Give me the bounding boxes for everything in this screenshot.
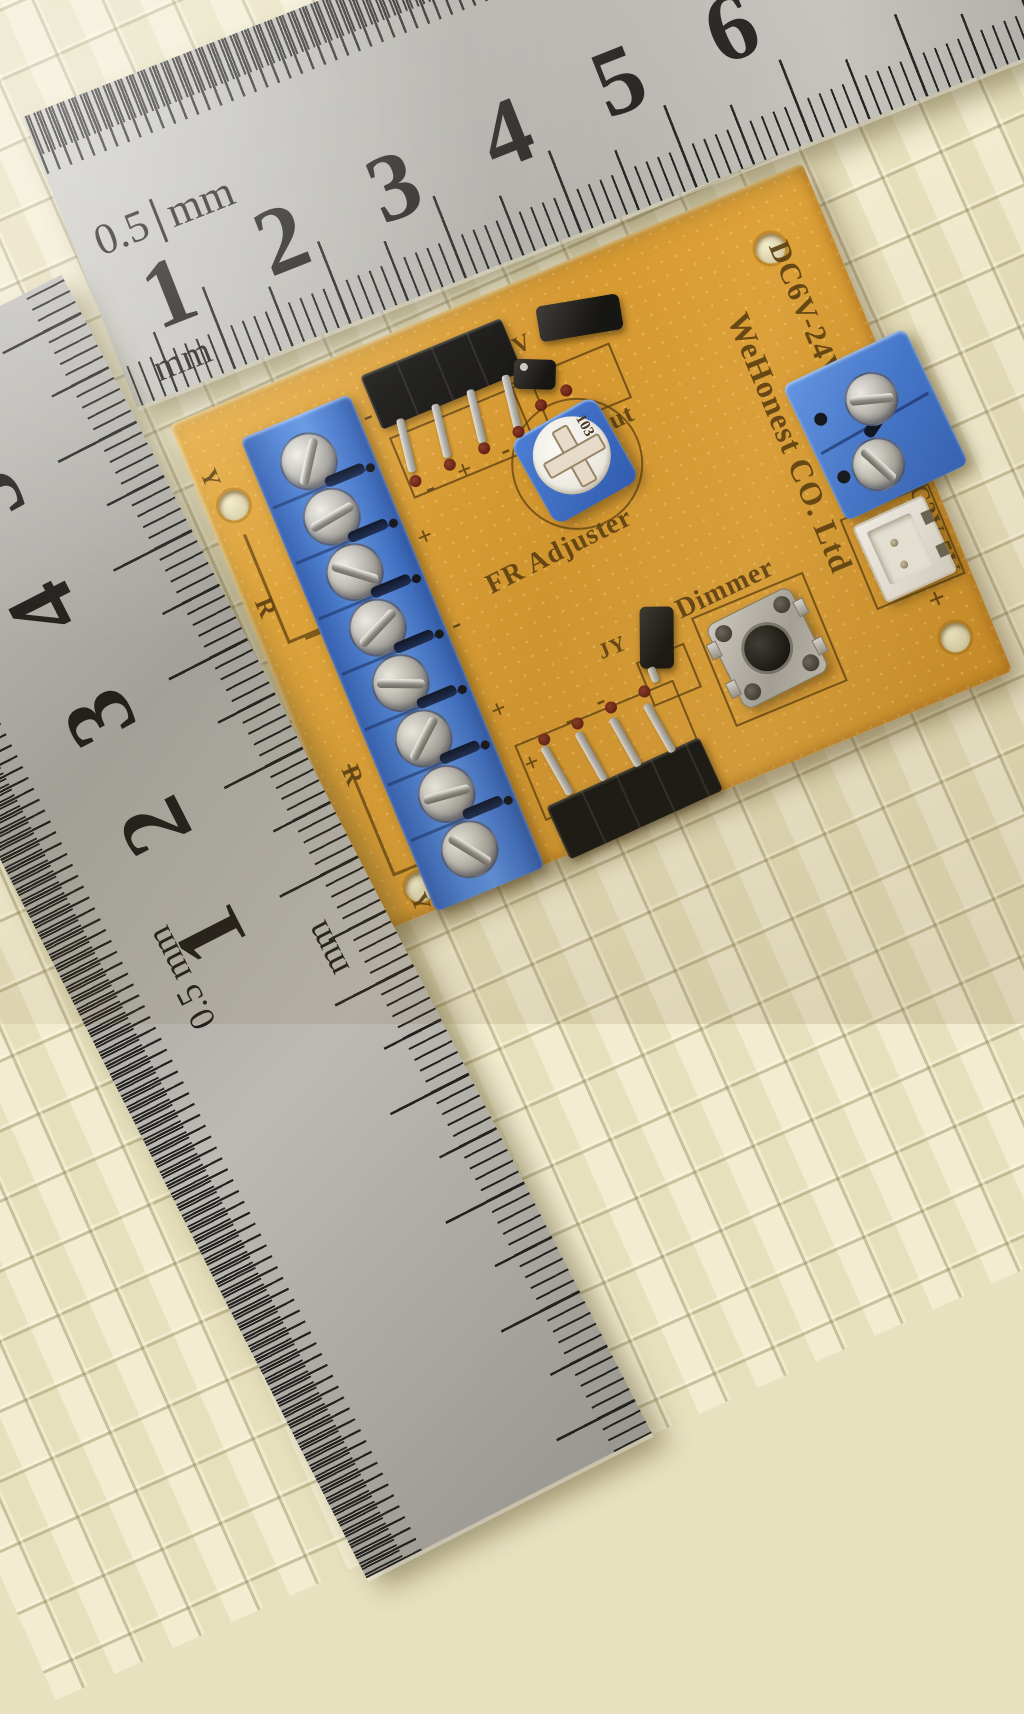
- jy-label: JY: [594, 630, 631, 665]
- mounting-hole: [936, 618, 975, 657]
- screw-slot: [299, 437, 318, 485]
- screw-slot: [377, 678, 425, 687]
- ruler-number: 2: [101, 784, 208, 870]
- solder-dot: [411, 573, 423, 585]
- mounting-hole: [214, 486, 253, 525]
- terminal-screw: [835, 363, 907, 435]
- screw-slot: [423, 783, 471, 804]
- jumper-cap-loose: [535, 293, 624, 342]
- terminal-screw: [842, 428, 914, 500]
- button-contact: [741, 680, 764, 703]
- solder-dot: [388, 517, 400, 529]
- ruler-number: 4: [0, 566, 97, 652]
- screw-slot: [331, 561, 379, 583]
- wire-entry-hole: [812, 411, 829, 428]
- jumper-cap-small: [513, 359, 556, 390]
- ruler-number: 3: [45, 675, 152, 761]
- screw-slot: [358, 607, 397, 648]
- photo-scene: DC6V-24V + WeHonest CO. Ltd DC3V-5V - + …: [0, 0, 1024, 1700]
- solder-dot: [479, 739, 491, 751]
- screw-slot: [849, 392, 894, 405]
- wire-entry-hole: [835, 468, 852, 485]
- solder-dot: [433, 628, 445, 640]
- screw-slot: [309, 501, 355, 533]
- screw-slot: [859, 446, 898, 482]
- ruler-number: 5: [0, 457, 42, 543]
- solder-dot: [365, 462, 377, 474]
- solder-dot: [456, 684, 468, 696]
- button-contact: [770, 593, 793, 616]
- screw-slot: [447, 833, 492, 866]
- strip-polarity-mark: +: [486, 693, 511, 726]
- highlight: [520, 363, 528, 371]
- screw-slot: [409, 715, 439, 761]
- jy-jumper-cap: [640, 606, 675, 668]
- y-label-top: Y: [194, 465, 226, 492]
- half-mm-unit: mm: [159, 165, 241, 238]
- strip-polarity-mark: +: [412, 520, 437, 553]
- button-plunger: [736, 617, 798, 679]
- aux-plus-mark: +: [923, 580, 953, 618]
- solder-dot: [502, 794, 514, 806]
